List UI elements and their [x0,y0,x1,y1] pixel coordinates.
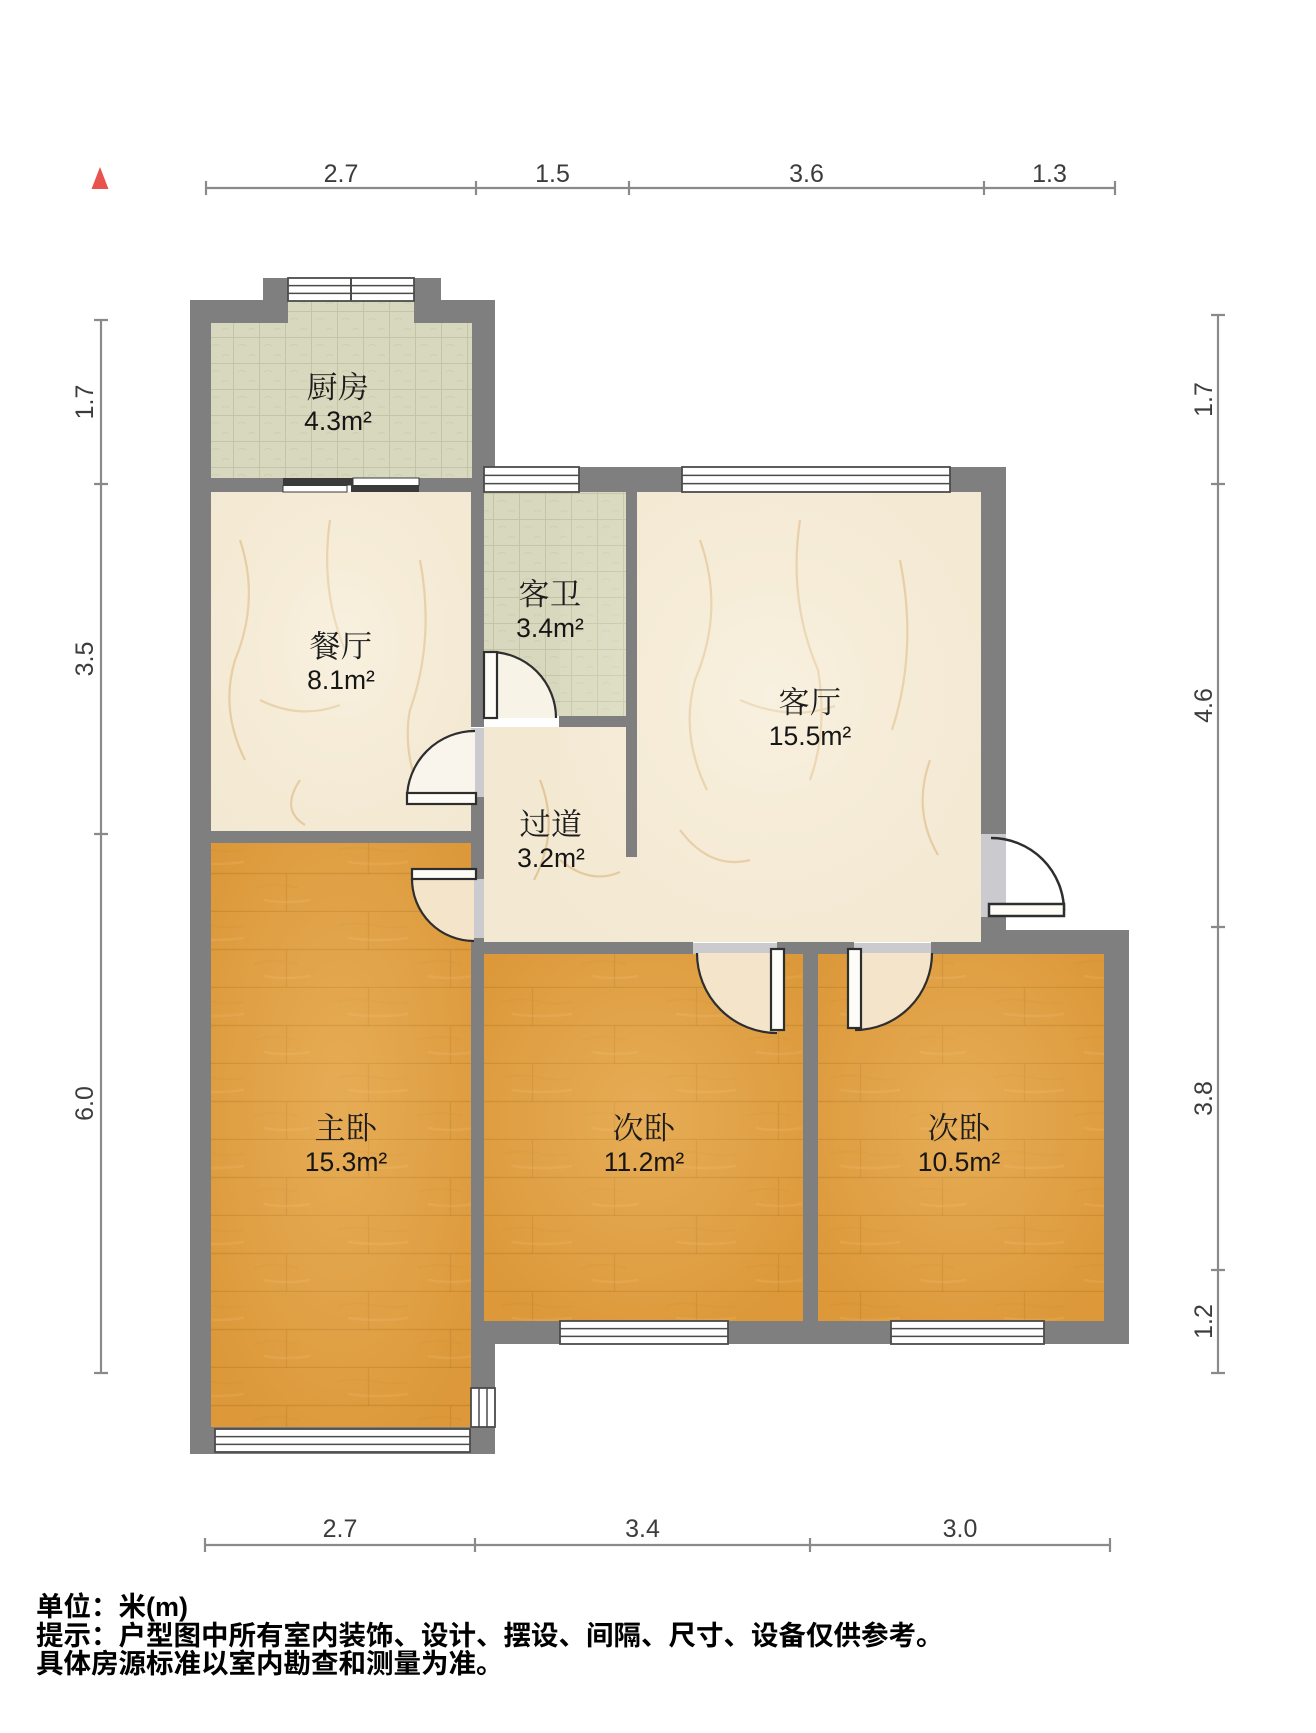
svg-text:1.2: 1.2 [1190,1304,1218,1339]
svg-text:3.4m²: 3.4m² [516,613,584,643]
svg-text:3.2m²: 3.2m² [517,843,585,873]
svg-text:6.0: 6.0 [71,1086,99,1121]
svg-text:3.8: 3.8 [1190,1081,1218,1116]
svg-text:15.5m²: 15.5m² [769,721,852,751]
svg-text:1.7: 1.7 [1190,382,1218,417]
svg-text:15.3m²: 15.3m² [305,1147,388,1177]
svg-text:4.6: 4.6 [1190,688,1218,723]
svg-text:10.5m²: 10.5m² [918,1147,1001,1177]
svg-text:1.5: 1.5 [535,160,570,188]
svg-text:3.5: 3.5 [71,642,99,677]
svg-text:1.3: 1.3 [1032,160,1067,188]
svg-text:4.3m²: 4.3m² [304,406,372,436]
svg-text:2.7: 2.7 [323,1515,358,1543]
svg-text:1.7: 1.7 [71,385,99,420]
svg-text:3.4: 3.4 [625,1515,660,1543]
svg-text:2.7: 2.7 [324,160,359,188]
svg-text:11.2m²: 11.2m² [604,1147,685,1177]
svg-text:3.0: 3.0 [943,1515,978,1543]
svg-text:8.1m²: 8.1m² [307,665,375,695]
svg-text:3.6: 3.6 [789,160,824,188]
svg-text:(m): (m) [146,1592,188,1622]
